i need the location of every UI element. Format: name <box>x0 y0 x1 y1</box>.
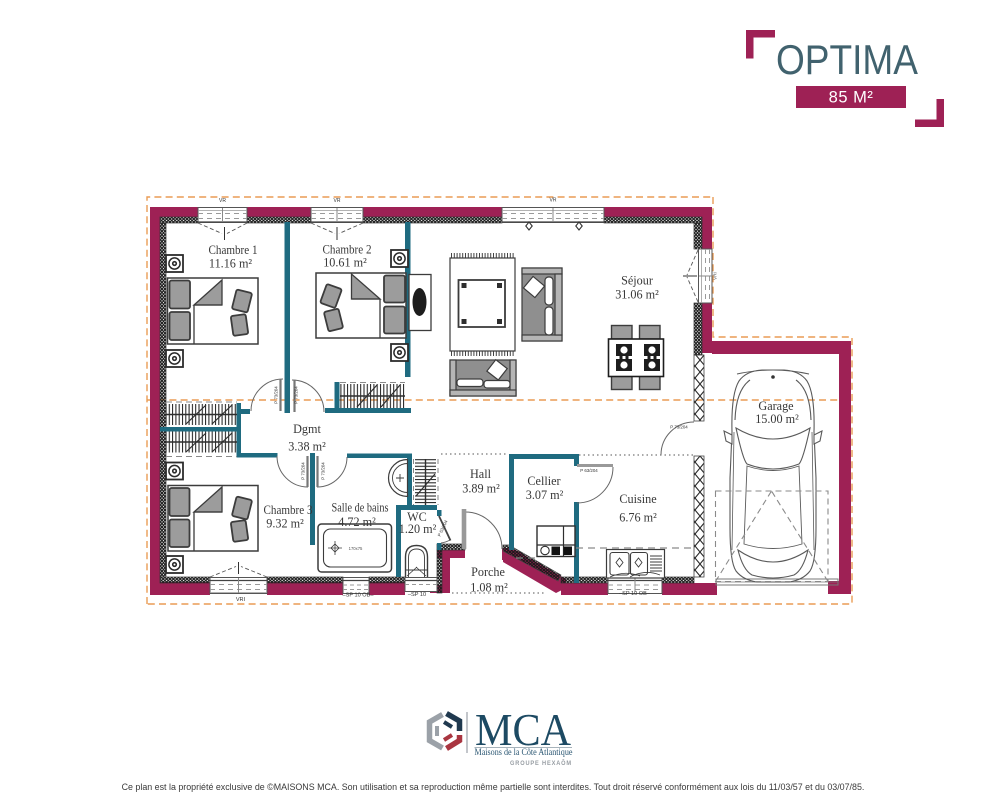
svg-text:Chambre 1: Chambre 1 <box>209 243 258 257</box>
svg-text:P 73/204: P 73/204 <box>294 386 299 404</box>
svg-text:–SP 10 OB–: –SP 10 OB– <box>343 593 375 599</box>
svg-text:Garage: Garage <box>758 399 793 413</box>
svg-text:Séjour: Séjour <box>621 274 653 288</box>
svg-text:Dgmt: Dgmt <box>293 422 321 436</box>
svg-text:15.00 m²: 15.00 m² <box>755 412 799 426</box>
svg-text:P 73/204: P 73/204 <box>321 462 326 480</box>
svg-text:3.07 m²: 3.07 m² <box>526 488 564 502</box>
svg-text:Cuisine: Cuisine <box>619 492 656 506</box>
svg-text:–SP 10 OB–: –SP 10 OB– <box>619 591 651 597</box>
svg-text:VRI: VRI <box>713 272 718 280</box>
svg-text:VRI: VRI <box>236 597 246 603</box>
svg-text:1.08 m²: 1.08 m² <box>470 581 508 595</box>
svg-text:Salle de bains: Salle de bains <box>332 501 389 515</box>
svg-text:1.20 m²: 1.20 m² <box>399 522 437 536</box>
svg-text:Chambre 2: Chambre 2 <box>323 243 372 257</box>
svg-text:P 73/204: P 73/204 <box>670 425 688 430</box>
svg-text:9.32 m²: 9.32 m² <box>266 517 304 531</box>
svg-text:P 63/204: P 63/204 <box>580 468 598 473</box>
svg-text:31.06 m²: 31.06 m² <box>615 288 659 302</box>
svg-text:3.38 m²: 3.38 m² <box>288 440 326 454</box>
svg-text:Cellier: Cellier <box>527 474 560 488</box>
svg-text:10.61 m²: 10.61 m² <box>323 256 367 270</box>
svg-text:Chambre 3: Chambre 3 <box>264 503 313 517</box>
svg-text:Ce plan est la propriété exclu: Ce plan est la propriété exclusive de ©M… <box>122 782 865 792</box>
svg-text:VR: VR <box>334 198 341 204</box>
svg-text:GROUPE HEXAÔM: GROUPE HEXAÔM <box>510 758 572 767</box>
svg-text:–SP 10: –SP 10 <box>408 592 426 598</box>
svg-text:4.72 m²: 4.72 m² <box>338 515 376 529</box>
svg-text:85 M²: 85 M² <box>829 89 874 107</box>
svg-text:170x75: 170x75 <box>349 546 363 551</box>
svg-text:Hall: Hall <box>470 467 492 481</box>
svg-text:Maisons de la Côte Atlantique: Maisons de la Côte Atlantique <box>475 747 573 757</box>
svg-text:P 73/204: P 73/204 <box>274 386 279 404</box>
svg-text:P 73/204: P 73/204 <box>301 462 306 480</box>
svg-text:VR: VR <box>219 198 226 204</box>
svg-text:6.76 m²: 6.76 m² <box>619 511 657 525</box>
svg-text:3.89 m²: 3.89 m² <box>462 482 500 496</box>
svg-text:11.16 m²: 11.16 m² <box>209 257 252 271</box>
svg-text:OPTIMA: OPTIMA <box>776 36 918 83</box>
svg-text:VR: VR <box>550 198 557 204</box>
svg-text:Porche: Porche <box>471 565 505 579</box>
